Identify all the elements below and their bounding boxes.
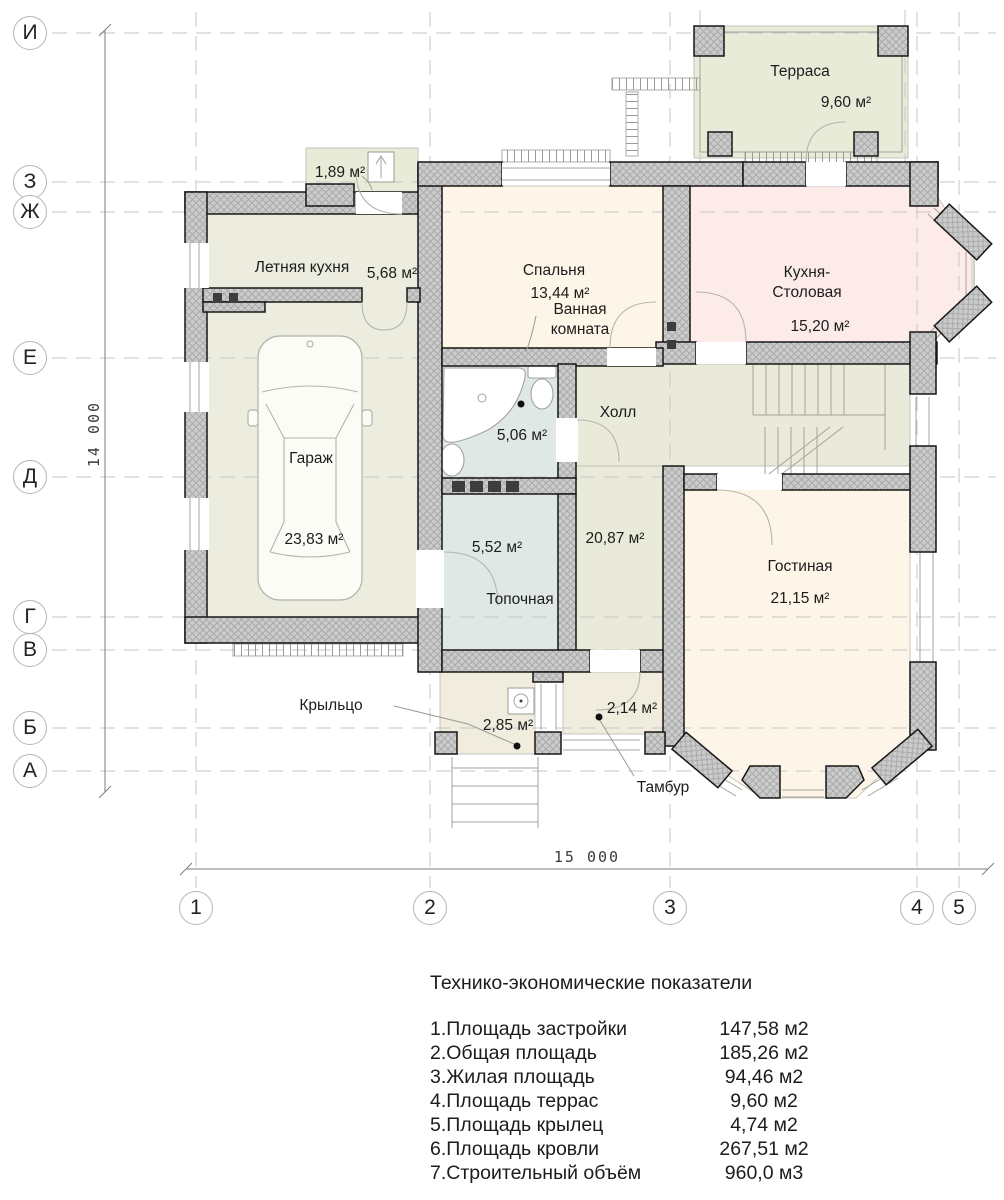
- axis-col-marker: 4: [900, 891, 934, 925]
- room-area-boiler: 5,52 м²: [472, 538, 522, 558]
- room-label-living: Гостиная: [767, 557, 832, 577]
- room-label-tambour: Тамбур: [637, 778, 690, 798]
- spec-table-row: 4.Площадь террас 9,60 м2: [430, 1089, 830, 1113]
- spec-row-label: 6.Площадь кровли: [430, 1137, 698, 1161]
- axis-row-marker: Ж: [13, 195, 47, 229]
- axis-row-marker: З: [13, 165, 47, 199]
- floor-plan-drawing: 15 000 14 000: [0, 0, 1004, 950]
- spec-table-row: 1.Площадь застройки 147,58 м2: [430, 1017, 830, 1041]
- spec-row-value: 4,74 м2: [698, 1113, 830, 1137]
- room-area-garage: 23,83 м²: [285, 530, 344, 550]
- room-area-terrace: 9,60 м²: [821, 93, 871, 113]
- spec-table-title: Технико-экономические показатели: [430, 972, 830, 995]
- room-area-bathroom: 5,06 м²: [497, 426, 547, 446]
- dimension-horizontal: 15 000: [554, 848, 620, 866]
- axis-col-marker: 2: [413, 891, 447, 925]
- spec-row-label: 5.Площадь крылец: [430, 1113, 698, 1137]
- spec-row-value: 147,58 м2: [698, 1017, 830, 1041]
- room-area-summer-kitchen: 5,68 м²: [367, 264, 417, 284]
- room-label-summer-kitchen: Летняя кухня: [255, 258, 349, 278]
- spec-row-label: 2.Общая площадь: [430, 1041, 698, 1065]
- room-area-kitchen: 15,20 м²: [791, 317, 850, 337]
- spec-row-label: 3.Жилая площадь: [430, 1065, 698, 1089]
- dimension-vertical: 14 000: [85, 401, 103, 467]
- room-area-tambour: 2,14 м²: [607, 699, 657, 719]
- axis-col-marker: 1: [179, 891, 213, 925]
- room-label-garage: Гараж: [289, 449, 333, 469]
- axis-col-marker: 3: [653, 891, 687, 925]
- spec-table-row: 3.Жилая площадь 94,46 м2: [430, 1065, 830, 1089]
- spec-row-value: 185,26 м2: [698, 1041, 830, 1065]
- room-area-hall: 20,87 м²: [586, 529, 645, 549]
- spec-row-label: 1.Площадь застройки: [430, 1017, 698, 1041]
- axis-row-marker: Б: [13, 711, 47, 745]
- axis-row-marker: И: [13, 16, 47, 50]
- axis-row-marker: В: [13, 633, 47, 667]
- spec-table-row: 6.Площадь кровли 267,51 м2: [430, 1137, 830, 1161]
- porch-stairs: [452, 757, 538, 828]
- room-label-bathroom: Ванная комната: [537, 300, 623, 340]
- room-label-terrace: Терраса: [770, 62, 829, 82]
- room-label-kitchen: Кухня-Столовая: [757, 263, 857, 303]
- spec-row-value: 9,60 м2: [698, 1089, 830, 1113]
- spec-row-label: 4.Площадь террас: [430, 1089, 698, 1113]
- spec-row-value: 267,51 м2: [698, 1137, 830, 1161]
- room-area-living: 21,15 м²: [771, 589, 830, 609]
- floor-plan-page: 15 000 14 000 И З Ж Е Д Г В Б А 1 2 3 4 …: [0, 0, 1004, 1200]
- spec-table-row: 5.Площадь крылец 4,74 м2: [430, 1113, 830, 1137]
- room-label-boiler: Топочная: [486, 590, 553, 610]
- axis-row-marker: Е: [13, 341, 47, 375]
- axis-row-marker: Д: [13, 460, 47, 494]
- spec-table-row: 7.Строительный объём 960,0 м3: [430, 1161, 830, 1185]
- room-label-hall: Холл: [600, 403, 637, 423]
- room-area-porch: 2,85 м²: [483, 716, 533, 736]
- axis-row-marker: А: [13, 754, 47, 788]
- axis-col-marker: 5: [942, 891, 976, 925]
- spec-row-value: 94,46 м2: [698, 1065, 830, 1089]
- spec-row-label: 7.Строительный объём: [430, 1161, 698, 1185]
- spec-table: Технико-экономические показатели 1.Площа…: [430, 972, 830, 1185]
- spec-table-row: 2.Общая площадь 185,26 м2: [430, 1041, 830, 1065]
- spec-row-value: 960,0 м3: [698, 1161, 830, 1185]
- axis-row-marker: Г: [13, 600, 47, 634]
- room-label-bedroom: Спальня: [523, 261, 585, 281]
- room-area-top-porch: 1,89 м²: [315, 163, 365, 183]
- room-label-porch: Крыльцо: [299, 696, 362, 716]
